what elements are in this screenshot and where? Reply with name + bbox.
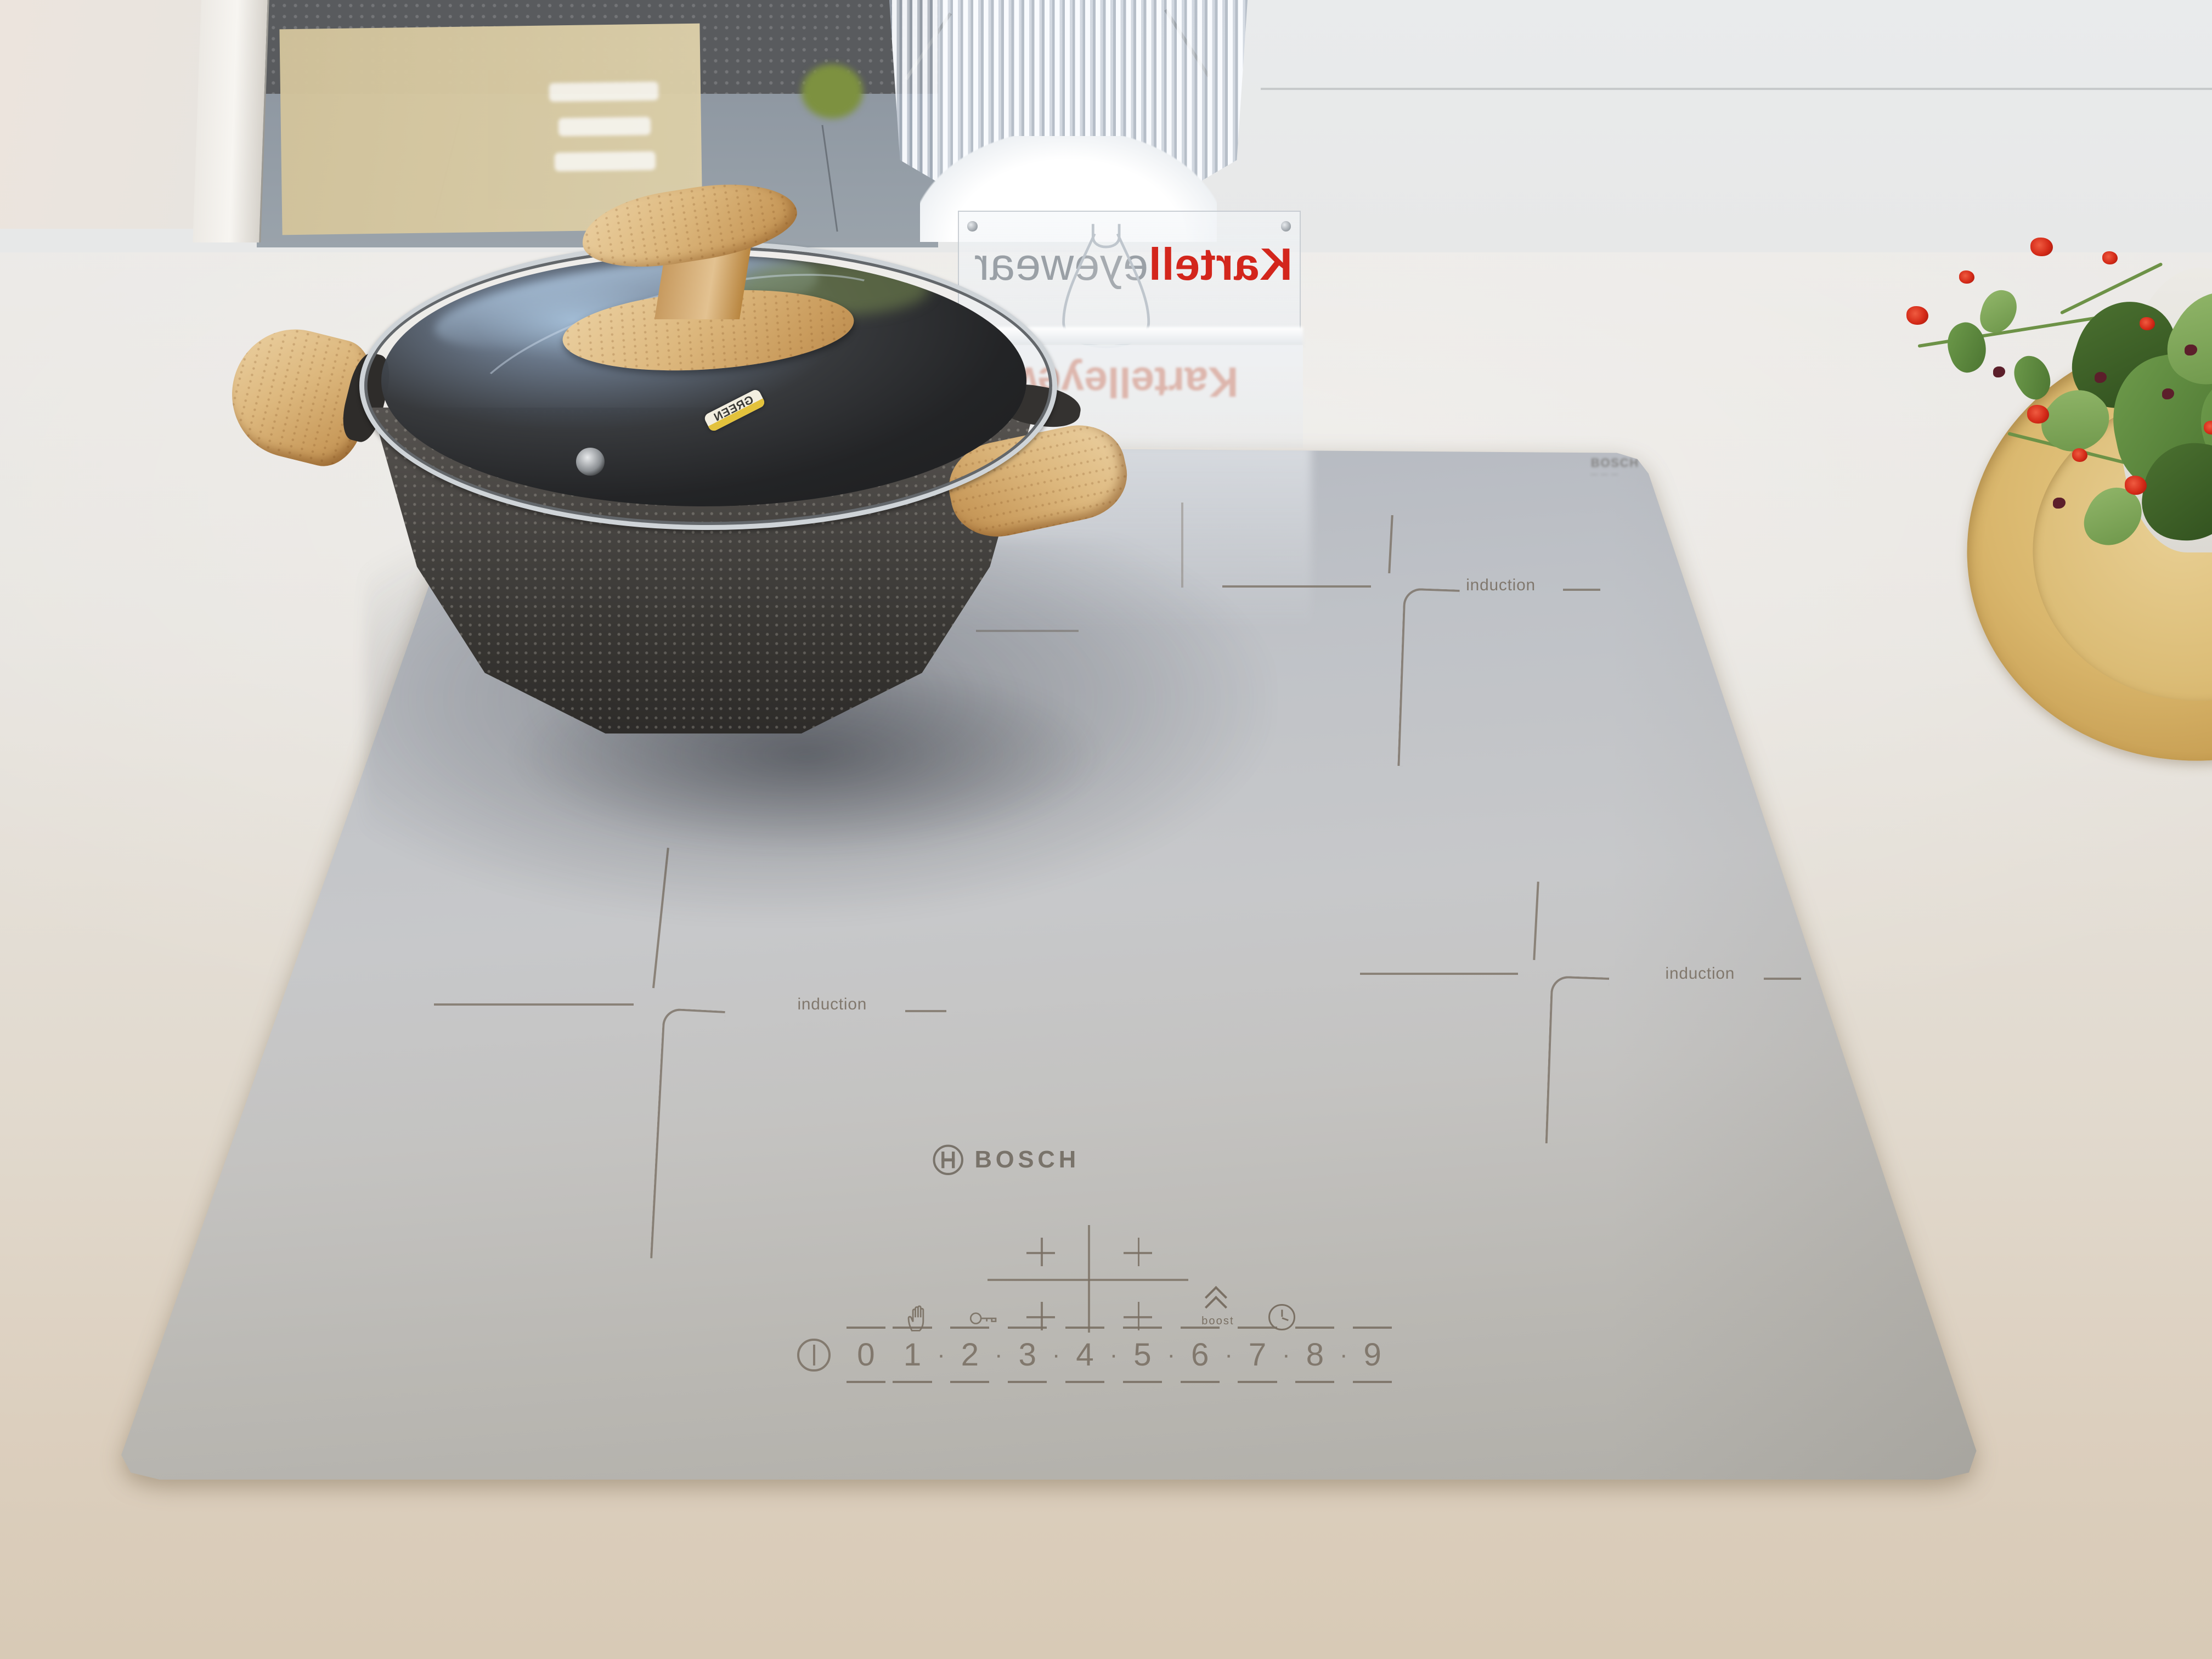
power-level-1[interactable]: 1: [889, 1327, 936, 1383]
cooking-pot: GREEN: [232, 202, 1175, 760]
flower-bud: [1993, 366, 2005, 377]
zone-front-left-left-arm: [434, 1003, 633, 1006]
boost-icon[interactable]: boost: [1201, 1296, 1230, 1328]
level-separator: ·: [993, 1341, 1004, 1369]
flower-bud: [2185, 345, 2197, 356]
power-level-8[interactable]: 8: [1292, 1327, 1339, 1383]
zone-label: induction: [1666, 964, 1735, 983]
red-flower: [2102, 251, 2118, 264]
power-level-4[interactable]: 4: [1062, 1327, 1108, 1383]
select-rear-left-key[interactable]: [1026, 1238, 1055, 1266]
red-flower: [2140, 317, 2155, 330]
power-level-6[interactable]: 6: [1177, 1327, 1223, 1383]
level-separator: ·: [1108, 1341, 1119, 1369]
red-flower: [2027, 405, 2049, 424]
zone-label-dash: [1563, 589, 1600, 591]
lid-steam-vent: [576, 448, 605, 476]
red-flower: [1959, 270, 1974, 284]
zone-label: induction: [1466, 576, 1536, 595]
zone-front-right-top-arm: [1533, 882, 1539, 960]
power-level-2[interactable]: 2: [947, 1327, 994, 1383]
zone-front-right-left-arm: [1360, 973, 1519, 975]
level-separator: ·: [1166, 1341, 1177, 1369]
level-separator: ·: [1051, 1341, 1062, 1369]
zone-front-right-elbow: [1545, 976, 1609, 1145]
power-level-7[interactable]: 7: [1234, 1327, 1281, 1383]
power-level-3[interactable]: 3: [1004, 1327, 1051, 1383]
zone-front-left-elbow: [650, 1008, 725, 1261]
red-flower: [1906, 306, 1928, 325]
power-icon[interactable]: [797, 1339, 830, 1372]
zone-label-dash: [905, 1010, 946, 1012]
level-separator: ·: [935, 1341, 946, 1369]
bosch-logo: BOSCH: [932, 1143, 1080, 1176]
zone-rear-right-top-arm: [1388, 515, 1393, 573]
scene: Kartelleyewear Kartelleyewe BOSCH— — — i…: [0, 0, 2212, 1659]
power-level-0[interactable]: 0: [843, 1327, 889, 1383]
power-level-slider[interactable]: 01·2·3·4·5·6·7·8·9: [797, 1327, 1396, 1383]
plant-arrangement: [1880, 224, 2212, 771]
zone-label-dash: [1764, 978, 1801, 980]
level-separator: ·: [1223, 1341, 1234, 1369]
level-row[interactable]: 01·2·3·4·5·6·7·8·9: [843, 1327, 1396, 1383]
zone-label: induction: [797, 995, 867, 1014]
key-lock-icon[interactable]: [969, 1309, 998, 1328]
model-marking: BOSCH— — —: [1591, 456, 1639, 478]
level-separator: ·: [1280, 1341, 1291, 1369]
red-flower: [2030, 238, 2052, 256]
select-rear-right-key[interactable]: [1124, 1238, 1152, 1266]
red-flower: [2125, 476, 2147, 494]
level-separator: ·: [1338, 1341, 1349, 1369]
zone-selector-vline[interactable]: [1088, 1225, 1090, 1333]
power-level-9[interactable]: 9: [1349, 1327, 1396, 1383]
zone-rear-right-elbow: [1398, 588, 1460, 768]
power-level-5[interactable]: 5: [1119, 1327, 1166, 1383]
red-flower: [2072, 448, 2087, 461]
bosch-armature-icon: [932, 1143, 964, 1176]
bosch-wordmark: BOSCH: [975, 1147, 1080, 1173]
